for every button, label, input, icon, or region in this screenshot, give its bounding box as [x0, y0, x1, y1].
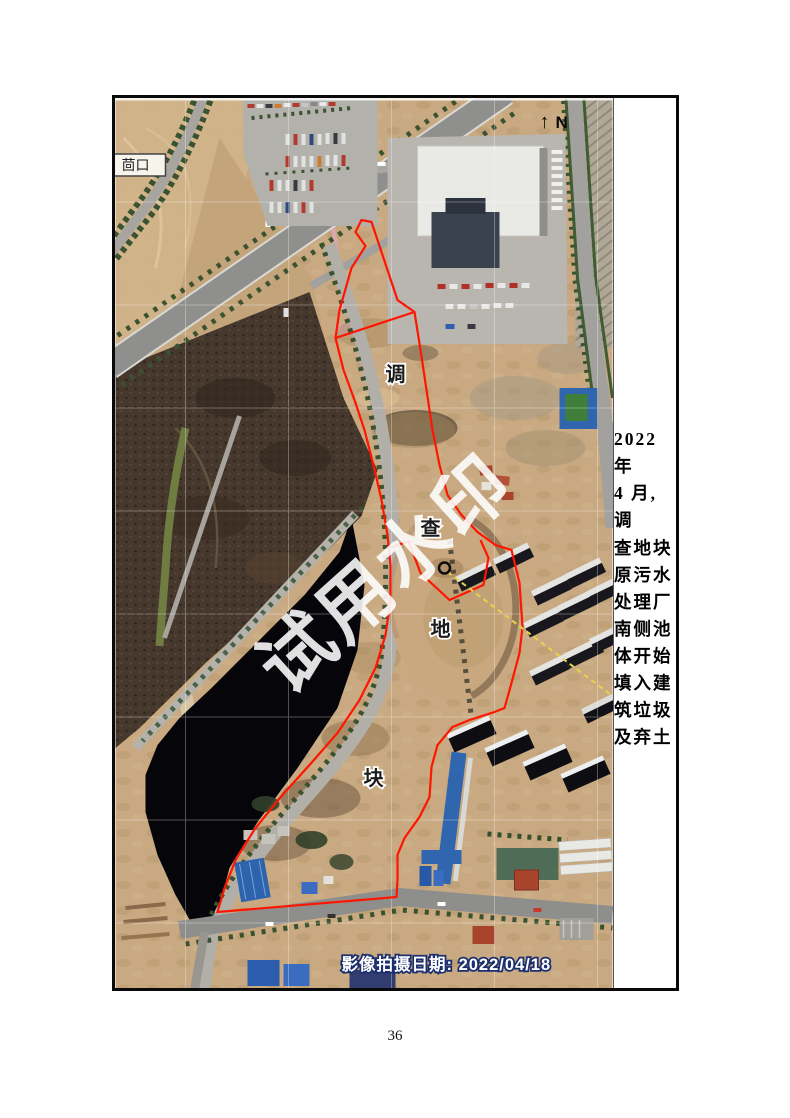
photo-top-gap	[116, 98, 613, 101]
svg-text:N: N	[556, 113, 568, 132]
satellite-map: 试用水印 调 查 地 块 ↑ N 茴口 影像拍摄日期: 2022/04/18	[115, 98, 613, 988]
figure-table: 试用水印 调 查 地 块 ↑ N 茴口 影像拍摄日期: 2022/04/18	[112, 95, 679, 991]
capture-date: 影像拍摄日期: 2022/04/18	[342, 954, 552, 974]
document-page: 试用水印 调 查 地 块 ↑ N 茴口 影像拍摄日期: 2022/04/18	[0, 0, 790, 1118]
figure-side-note: 2022 年 4 月,调 查地块 原污水 处理厂 南侧池 体开始 填入建 筑垃圾…	[614, 426, 676, 988]
plot-label-1: 调	[386, 363, 406, 386]
svg-text:茴口: 茴口	[122, 157, 150, 173]
parking-lot	[244, 98, 378, 226]
plot-label-2: 查	[421, 516, 441, 540]
plot-label-4: 块	[364, 767, 385, 790]
note-cell: 2022 年 4 月,调 查地块 原污水 处理厂 南侧池 体开始 填入建 筑垃圾…	[614, 98, 676, 988]
svg-text:↑: ↑	[540, 111, 550, 133]
page-number: 36	[0, 1028, 790, 1045]
place-label: 茴口	[115, 154, 166, 176]
plot-label-3: 地	[431, 618, 451, 641]
